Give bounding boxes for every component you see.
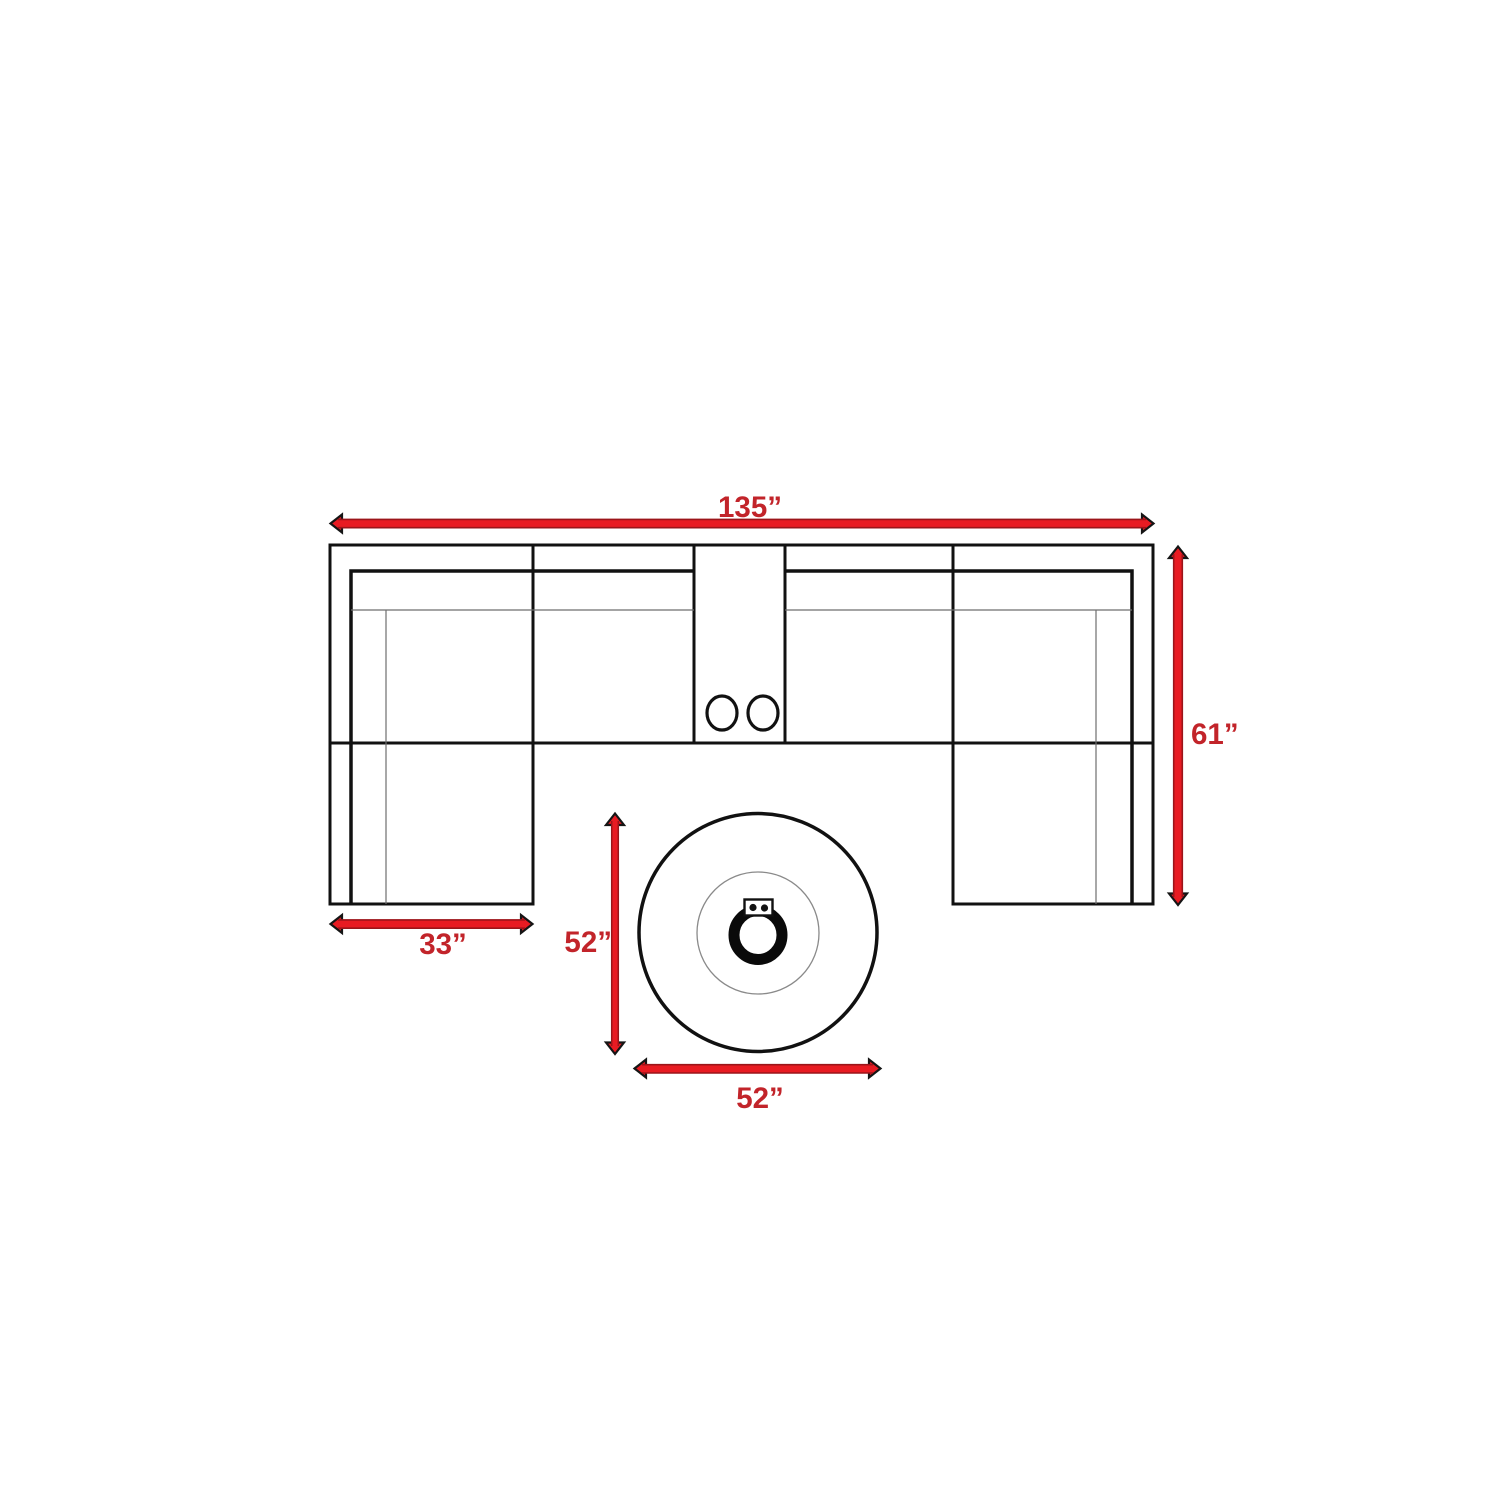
svg-text:135”: 135” bbox=[718, 491, 782, 524]
svg-text:33”: 33” bbox=[419, 928, 467, 961]
svg-text:52”: 52” bbox=[564, 926, 612, 959]
svg-text:52”: 52” bbox=[736, 1082, 784, 1115]
svg-text:61”: 61” bbox=[1191, 718, 1239, 751]
